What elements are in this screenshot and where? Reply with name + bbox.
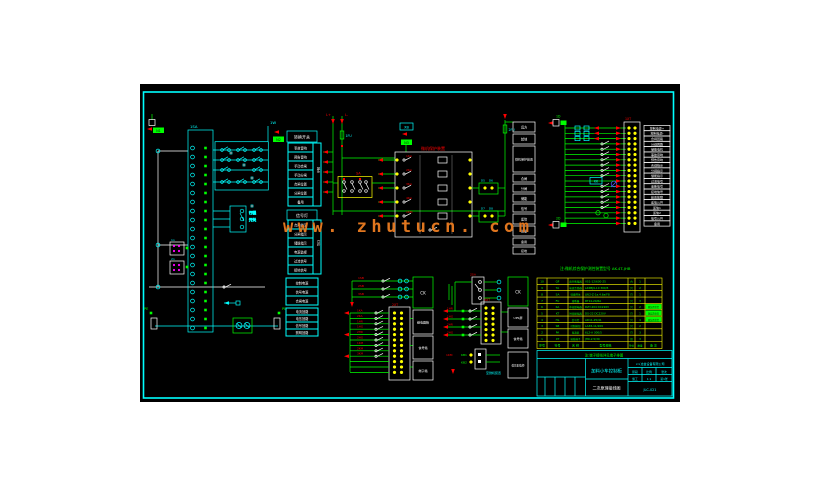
relay-tag: 3KA bbox=[406, 182, 413, 186]
table-a-row: 分闸位置 bbox=[294, 190, 307, 195]
terminal-function: 合闸指示 bbox=[651, 163, 663, 168]
limit-switch-label: 开关 bbox=[249, 217, 257, 222]
revision-area bbox=[537, 377, 586, 396]
terminal-block-label: 1SA bbox=[190, 124, 198, 129]
bom-cell: AD11-25/41 bbox=[585, 318, 602, 322]
terminal-function: 事故音响 bbox=[651, 152, 663, 157]
bom-cell: 只 bbox=[630, 312, 633, 315]
device-cell: 微机保护装置 bbox=[515, 157, 533, 162]
signal-table-a: 转换开关 事故音响 预告音响 手动合闸 手动分闸 合闸位置 分闸位置 备用 触点 bbox=[287, 131, 322, 206]
terminal-function: 分闸指示 bbox=[651, 168, 663, 173]
g1-ck-label: CK bbox=[420, 291, 426, 296]
right-section: 1D 2D bbox=[548, 115, 670, 233]
terminal-label: D8 bbox=[489, 207, 493, 211]
bom-cell: 4 bbox=[639, 318, 641, 322]
terminal-label: D5 bbox=[481, 179, 485, 183]
table-b-row: 过流信号 bbox=[294, 258, 307, 263]
terminal-strip: 1XT bbox=[624, 117, 640, 232]
bom-rows: 10QF真空断路器VS1-12/630-25台1 9TA电流互感器LZZBJ9-… bbox=[540, 280, 660, 341]
g1-row-label: 1HG bbox=[357, 325, 363, 329]
bom-cell: 10 bbox=[540, 280, 544, 284]
bom-cell: 6 bbox=[541, 305, 543, 309]
bom-cell: 信号灯 bbox=[572, 318, 580, 322]
g2-xt-terminals bbox=[485, 307, 495, 342]
bom-cell: 接线端子 bbox=[570, 337, 581, 341]
grid-cell: 施工 bbox=[632, 377, 638, 381]
bom-cell: 2 bbox=[639, 324, 641, 328]
bottom-group-3: 1KM KB1 KB2 至微机装置 bbox=[446, 349, 501, 375]
contact-matrix bbox=[213, 126, 268, 190]
table-a-row: 事故音响 bbox=[294, 145, 307, 150]
g1-row-label: 2KA bbox=[357, 314, 363, 318]
limit-switch-box: 行程 开关 bbox=[213, 205, 257, 232]
table-d-row: 照明回路 bbox=[296, 330, 310, 335]
bom-cell: 6L2-A 300/5 bbox=[585, 331, 602, 335]
bom-cell: 转换开关 bbox=[570, 292, 581, 296]
grid-cell: 张次 bbox=[661, 370, 667, 374]
table-c-row: 合闸电源 bbox=[296, 298, 310, 303]
wire-label: 1W bbox=[270, 120, 276, 125]
table-b-row: 储能指示 bbox=[294, 240, 307, 245]
bom-cell: XT bbox=[556, 337, 560, 341]
bom-cell: 2 bbox=[541, 331, 543, 335]
bom-cell: 7 bbox=[541, 299, 543, 303]
g1-top-label: 3SB bbox=[358, 292, 364, 296]
connector-right-bottom: 2D bbox=[548, 217, 567, 229]
bom-cell: 1 bbox=[639, 280, 641, 284]
bom-cell: 中间继电器 bbox=[569, 305, 582, 309]
bom-remark: 随装置供货 bbox=[648, 318, 660, 322]
grid-cell: 第1张 bbox=[660, 377, 668, 381]
bom-cell: JH9-2.5/30 bbox=[584, 337, 600, 341]
row-contacts bbox=[601, 141, 609, 209]
bom-header-cell: 符号 bbox=[554, 343, 560, 348]
bom-cell: SA bbox=[556, 292, 560, 296]
bom-cell: VS1-12/630-25 bbox=[585, 280, 606, 284]
title-block: 注:端子接线详见端子排图 加料小车控制柜 二次原理接线图 ××冶金设备有限公司 … bbox=[537, 351, 672, 397]
terminal-label: D6 bbox=[489, 179, 493, 183]
table-d-row: 电压回路 bbox=[296, 316, 310, 321]
g2-top-wires bbox=[449, 282, 497, 311]
page: { "watermark": "www. zhutucn. com", "not… bbox=[0, 0, 818, 488]
bom-cell: 只 bbox=[630, 293, 633, 296]
g1-row-label: 1KA bbox=[357, 309, 363, 313]
device-cell: 储能 bbox=[521, 196, 528, 201]
bom-cell: 4 bbox=[541, 318, 543, 322]
bom-cell: TA bbox=[555, 286, 559, 290]
table-b-side: 灯位 bbox=[317, 240, 322, 246]
relay-box-title: 微机保护装置 bbox=[421, 145, 445, 151]
bom-remark: 随装置供货 bbox=[648, 311, 660, 315]
device-cell: 接地 bbox=[521, 248, 527, 253]
bom-cell: 只 bbox=[630, 287, 633, 290]
drawing-frame bbox=[144, 92, 674, 398]
terminal-function: 过流信号 bbox=[651, 178, 663, 183]
bom-cell: 1 bbox=[541, 337, 543, 341]
device-cell: 信号 bbox=[521, 206, 527, 211]
drawing-number: JLC-021 bbox=[643, 388, 657, 392]
g1-top-rows: 1SB 2SB 3SB bbox=[352, 276, 413, 299]
g2-dest: UPS屏 bbox=[514, 316, 523, 320]
cad-canvas[interactable]: N1 1SA bbox=[140, 84, 680, 402]
drawing-note: 注:微机综合保护测控装置型号 AK-4T-JHB bbox=[560, 266, 631, 271]
bom-cell: KA bbox=[556, 305, 560, 309]
aux-terminal-label: 1n bbox=[171, 238, 175, 242]
g3-k1-label: KB1 bbox=[461, 353, 467, 357]
terminal-strip-title: 1XT bbox=[625, 117, 631, 121]
bom-cell: 只 bbox=[630, 300, 633, 303]
bom-cell: QF bbox=[556, 280, 560, 284]
connector-label: 2D bbox=[556, 217, 561, 221]
connector-label: N1 bbox=[156, 129, 161, 133]
g2-left-rows: 1HR 1HG 2HR 2HG bbox=[443, 307, 481, 337]
g1-dest: 继电器箱 bbox=[417, 320, 429, 325]
limit-switch-label: 行程 bbox=[249, 210, 257, 215]
g3-dest-label: 至微机装置 bbox=[486, 370, 501, 375]
bom-header-cell: 型号规格 bbox=[599, 343, 611, 348]
g3-k2-label: KB2 bbox=[461, 361, 467, 365]
connector-label: N3 bbox=[404, 141, 409, 145]
relay-row: 3KA bbox=[378, 182, 471, 191]
grid-cell: 比例 bbox=[646, 370, 652, 374]
terminal-label: D7 bbox=[481, 207, 485, 211]
grid-cell: 阶段 bbox=[632, 370, 638, 374]
device-cell: 就地 bbox=[521, 137, 528, 142]
bus-plus-label: L+ bbox=[326, 113, 331, 117]
bom-cell: DS-22 DC220V bbox=[585, 311, 606, 315]
bom-cell: HL bbox=[556, 318, 560, 322]
bom-cell: LW2-Z-1a.4.6a/F8 bbox=[585, 292, 610, 296]
bom-cell: 真空断路器 bbox=[569, 280, 582, 284]
xb-label: XB bbox=[404, 125, 409, 129]
table-a-row: 备用 bbox=[297, 199, 303, 204]
terminal-function: 控制电源+ bbox=[650, 125, 665, 130]
g2-sa-label: 2SA bbox=[470, 273, 477, 277]
table-a-header: 转换开关 bbox=[294, 134, 310, 140]
bottom-group-2: 2SA CK 3XT 1HR 1HG 2HR 2HG bbox=[443, 273, 528, 379]
g1-xt-title: 2XT bbox=[392, 303, 398, 307]
bom-cell: FU bbox=[556, 299, 560, 303]
bom-cell: 2 bbox=[639, 305, 641, 309]
table-a-row: 合闸位置 bbox=[294, 181, 307, 186]
g1-row-label: 2HG bbox=[357, 336, 363, 340]
terminal-function: 装置故障 bbox=[651, 194, 663, 199]
bom-header-cell: 序号 bbox=[539, 343, 545, 348]
terminal-function: 接地信号 bbox=[651, 189, 663, 194]
connector-xb: XB N3 bbox=[400, 123, 413, 152]
device-cell: 合闸 bbox=[521, 176, 527, 181]
relay-row: 4KA bbox=[378, 196, 471, 205]
bom-cell: LZZBJ9-10 300/5 bbox=[585, 286, 609, 290]
device-cell: 远方 bbox=[521, 125, 527, 130]
table-a-row: 预告音响 bbox=[294, 154, 307, 159]
product-title: 加料小车控制柜 bbox=[591, 368, 622, 375]
device-cell: 备用 bbox=[521, 239, 527, 244]
terminal-function: 遥信1 bbox=[653, 205, 661, 210]
connector-label: 1D bbox=[556, 115, 561, 119]
g2-dest: 低压配电柜 bbox=[512, 364, 525, 368]
terminal-function: 储能指示 bbox=[651, 173, 663, 178]
bom-header-cell: 名 称 bbox=[572, 343, 579, 348]
bom-cell: 3 bbox=[541, 324, 543, 328]
bom-header-cell: 数量 bbox=[637, 344, 643, 348]
terminal-function: 控制电源- bbox=[650, 131, 663, 136]
table-d-row: 电流回路 bbox=[296, 309, 310, 314]
relay-tag: 2KA bbox=[406, 168, 413, 172]
g2-dest: 信号箱 bbox=[513, 336, 522, 341]
g1-row-label: 3KM bbox=[357, 352, 364, 356]
terminal-function: 分闸回路 bbox=[651, 141, 663, 146]
circuit-table-d: 电流回路 电压回路 信号回路 照明回路 bbox=[286, 308, 318, 336]
bom-cell: 熔断器 bbox=[572, 299, 580, 303]
bom-header-cell: 备 注 bbox=[650, 343, 657, 348]
g1-xt-terminals bbox=[393, 312, 403, 374]
bom-cell: LA38-11/209 bbox=[585, 324, 603, 328]
bom-cell: 台 bbox=[630, 280, 633, 284]
table-c-row: 控制电源 bbox=[296, 280, 310, 285]
table-b-row: 电源监视 bbox=[294, 249, 308, 254]
g3-km-label: 1KM bbox=[446, 353, 453, 357]
terminal-function: 遥信2 bbox=[653, 210, 661, 215]
table-d-row: 信号回路 bbox=[296, 323, 310, 328]
bom-cell: 只 bbox=[630, 332, 633, 335]
power-table-c: 控制电源 信号电源 合闸电源 bbox=[286, 278, 318, 305]
motor-circuit: PE PE bbox=[144, 284, 286, 333]
lamp-icon bbox=[604, 213, 608, 217]
bottom-group-1: 1SB 2SB 3SB CK 2XT 1KA 2KA 1HR 1HG 2HR bbox=[344, 276, 433, 380]
g2-dest-boxes: UPS屏 信号箱 低压配电柜 bbox=[501, 308, 528, 378]
bom-cell: 3 bbox=[639, 337, 641, 341]
bom-cell: 电流表 bbox=[572, 331, 580, 335]
terminal-function: 预告音响 bbox=[651, 157, 663, 162]
bom-cell: 只 bbox=[630, 306, 633, 309]
bom-cell: 2 bbox=[639, 286, 641, 290]
terminal-function: 信号公共 bbox=[651, 216, 663, 221]
g1-dest: 端子箱 bbox=[418, 368, 427, 373]
output-terminals: D5 D6 D7 D8 2FU bbox=[472, 114, 515, 222]
table-a-row: 手动分闸 bbox=[294, 172, 307, 177]
kk-marker: KK bbox=[590, 178, 617, 188]
company-name: ××冶金设备有限公司 bbox=[635, 361, 664, 366]
relay-tag: 1KM bbox=[406, 210, 413, 214]
bom-cell: 组 bbox=[630, 337, 633, 341]
relay-row: 2KA bbox=[378, 168, 471, 177]
fuse-label: 2FU bbox=[509, 128, 516, 132]
g1-dest: 信号箱 bbox=[418, 345, 427, 350]
bom-cell: 1 bbox=[639, 311, 641, 315]
connector-mid: 1W N2 bbox=[270, 120, 284, 142]
bom-cell: 时间继电器 bbox=[569, 311, 582, 315]
g1-top-label: 2SB bbox=[358, 284, 364, 288]
g1-top-label: 1SB bbox=[358, 276, 364, 280]
terminal-label-column: 控制电源+ 控制电源- 合闸回路 分闸回路 储能电机 事故音响 预告音响 合闸指… bbox=[644, 125, 670, 226]
g1-left-rows: 1KA 2KA 1HR 1HG 2HR 2HG 1KM 2KM 3KM bbox=[344, 309, 389, 373]
aux-terminal-boxes: 1n 2n bbox=[170, 238, 188, 274]
drawing-title: 二次原理接线图 bbox=[593, 385, 621, 391]
bom-cell: 3 bbox=[639, 331, 641, 335]
terminal-function: 备用 bbox=[654, 221, 660, 226]
bom-table: 10QF真空断路器VS1-12/630-25台1 9TA电流互感器LZZBJ9-… bbox=[537, 278, 662, 349]
g1-row-label: 1HR bbox=[357, 319, 363, 323]
left-section: N1 1SA bbox=[144, 114, 286, 333]
title-block-note: 注:端子接线详见端子排图 bbox=[585, 352, 624, 357]
g1-row-label: 1KM bbox=[357, 341, 364, 345]
sa-label: SA bbox=[356, 172, 361, 176]
g2-ck-label: CK bbox=[515, 290, 521, 295]
fuse-label: 1FU bbox=[346, 134, 353, 138]
table-c-row: 信号电源 bbox=[296, 289, 310, 294]
terminal-block: 1SA bbox=[188, 124, 213, 332]
connector-label: N2 bbox=[276, 138, 281, 142]
bom-cell: 控制按钮 bbox=[570, 324, 581, 328]
schematic-svg: N1 1SA bbox=[140, 84, 680, 402]
bom-cell: 1 bbox=[639, 292, 641, 296]
bom-cell: 8 bbox=[541, 292, 543, 296]
aux-terminal-label: 2n bbox=[171, 257, 175, 261]
connector-right-top: 1D bbox=[548, 115, 567, 127]
grid-cell: 1:1 bbox=[647, 377, 652, 381]
bom-cell: DZY-204 DC220V bbox=[585, 305, 609, 309]
table-a-row: 手动合闸 bbox=[294, 163, 307, 168]
g2-xt-title: 3XT bbox=[484, 298, 490, 302]
bom-cell: 电流互感器 bbox=[569, 286, 582, 290]
relay-row: 1KA bbox=[378, 154, 471, 163]
row-arrows bbox=[616, 126, 621, 225]
table-a-side: 触点 bbox=[317, 167, 322, 173]
bom-header: 序号 符号 名 称 型号规格 单位 数量 备 注 bbox=[539, 343, 657, 348]
bom-cell: 3 bbox=[639, 299, 641, 303]
bom-cell: 只 bbox=[630, 319, 633, 322]
bom-cell: 5 bbox=[541, 311, 543, 315]
table-b-row: 接地信号 bbox=[294, 267, 307, 272]
terminal-function: 速断信号 bbox=[651, 184, 663, 189]
g2-xt-box bbox=[481, 302, 501, 344]
bom-cell: KT bbox=[556, 311, 560, 315]
g1-dest-boxes: 继电器箱 信号箱 端子箱 bbox=[410, 310, 433, 380]
terminal-function: 储能电机 bbox=[651, 147, 663, 152]
device-cell: 分闸 bbox=[521, 186, 527, 191]
bom-cell: 只 bbox=[630, 325, 633, 328]
watermark: www. zhutucn. com bbox=[283, 217, 534, 237]
bom-cell: PA bbox=[556, 331, 560, 335]
terminal-function: 遥信公共 bbox=[651, 200, 663, 205]
title-grid-cells: 阶段 比例 张次 施工 1:1 第1张 bbox=[632, 370, 668, 381]
relay-tag: 4KA bbox=[406, 196, 413, 200]
relay-tag: 1KA bbox=[406, 154, 413, 158]
connector-top-left: N1 bbox=[147, 114, 164, 133]
g1-row-label: 2KM bbox=[357, 346, 364, 350]
bom-remark: 随装置供货 bbox=[648, 305, 660, 309]
bom-header-cell: 单位 bbox=[629, 344, 635, 348]
g2-switch-box bbox=[472, 277, 484, 304]
bom-cell: RT14-20/6A bbox=[585, 299, 601, 303]
terminal-function: 合闸回路 bbox=[651, 136, 663, 141]
g1-xt-box bbox=[389, 307, 410, 380]
g1-row-label: 2HR bbox=[357, 330, 363, 334]
bom-cell: 9 bbox=[541, 286, 543, 290]
bom-cell: SB bbox=[556, 324, 560, 328]
pe-label: PE bbox=[144, 307, 148, 311]
bus-minus-label: L- bbox=[345, 113, 349, 117]
